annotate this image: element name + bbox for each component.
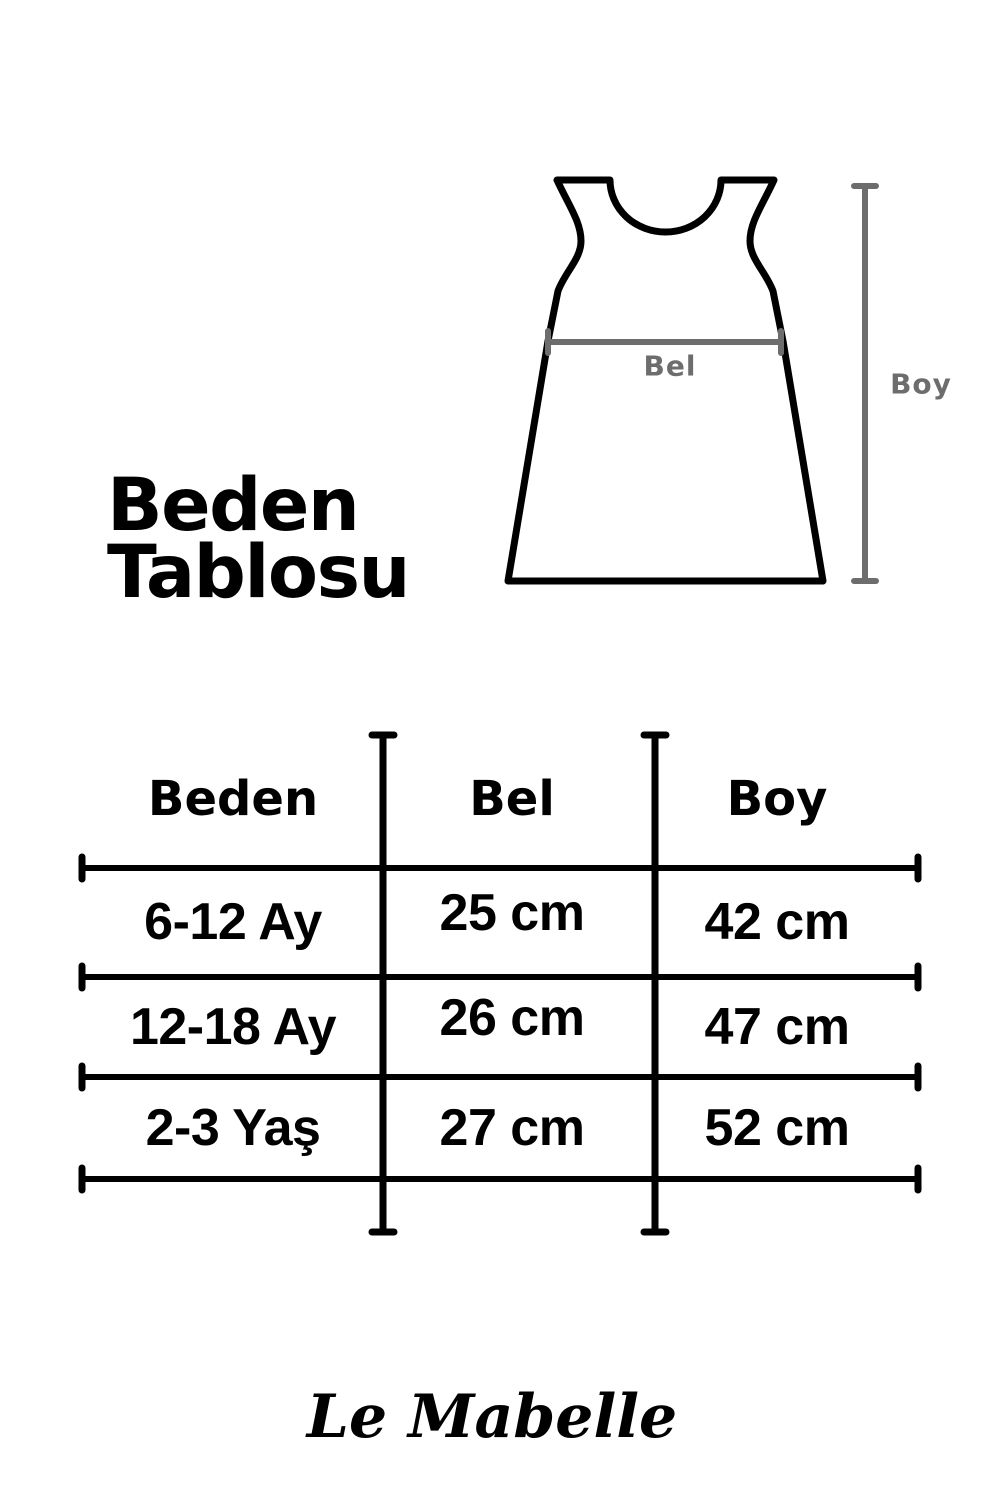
waist-measure-label: Bel [644, 350, 697, 383]
table-row-size: 12-18 Ay [130, 997, 336, 1057]
col-header-waist: Bel [469, 771, 555, 827]
size-chart-page: Beden Tablosu Bel Boy Beden Bel Boy 6-12… [0, 0, 1000, 1500]
line-art [0, 0, 1000, 1500]
col-header-size: Beden [148, 771, 318, 827]
table-row-waist: 25 cm [440, 883, 585, 943]
table-row-height: 47 cm [705, 997, 850, 1057]
height-measure-line [854, 186, 876, 581]
col-header-height: Boy [727, 771, 828, 827]
table-row-waist: 27 cm [440, 1098, 585, 1158]
table-row-size: 2-3 Yaş [146, 1098, 321, 1158]
table-row-height: 42 cm [705, 892, 850, 952]
page-title: Beden Tablosu [107, 472, 409, 606]
brand-logo: Le Mabelle [307, 1382, 677, 1452]
table-row-waist: 26 cm [440, 988, 585, 1048]
table-row-height: 52 cm [705, 1098, 850, 1158]
table-row-size: 6-12 Ay [144, 892, 322, 952]
height-measure-label: Boy [890, 368, 952, 401]
